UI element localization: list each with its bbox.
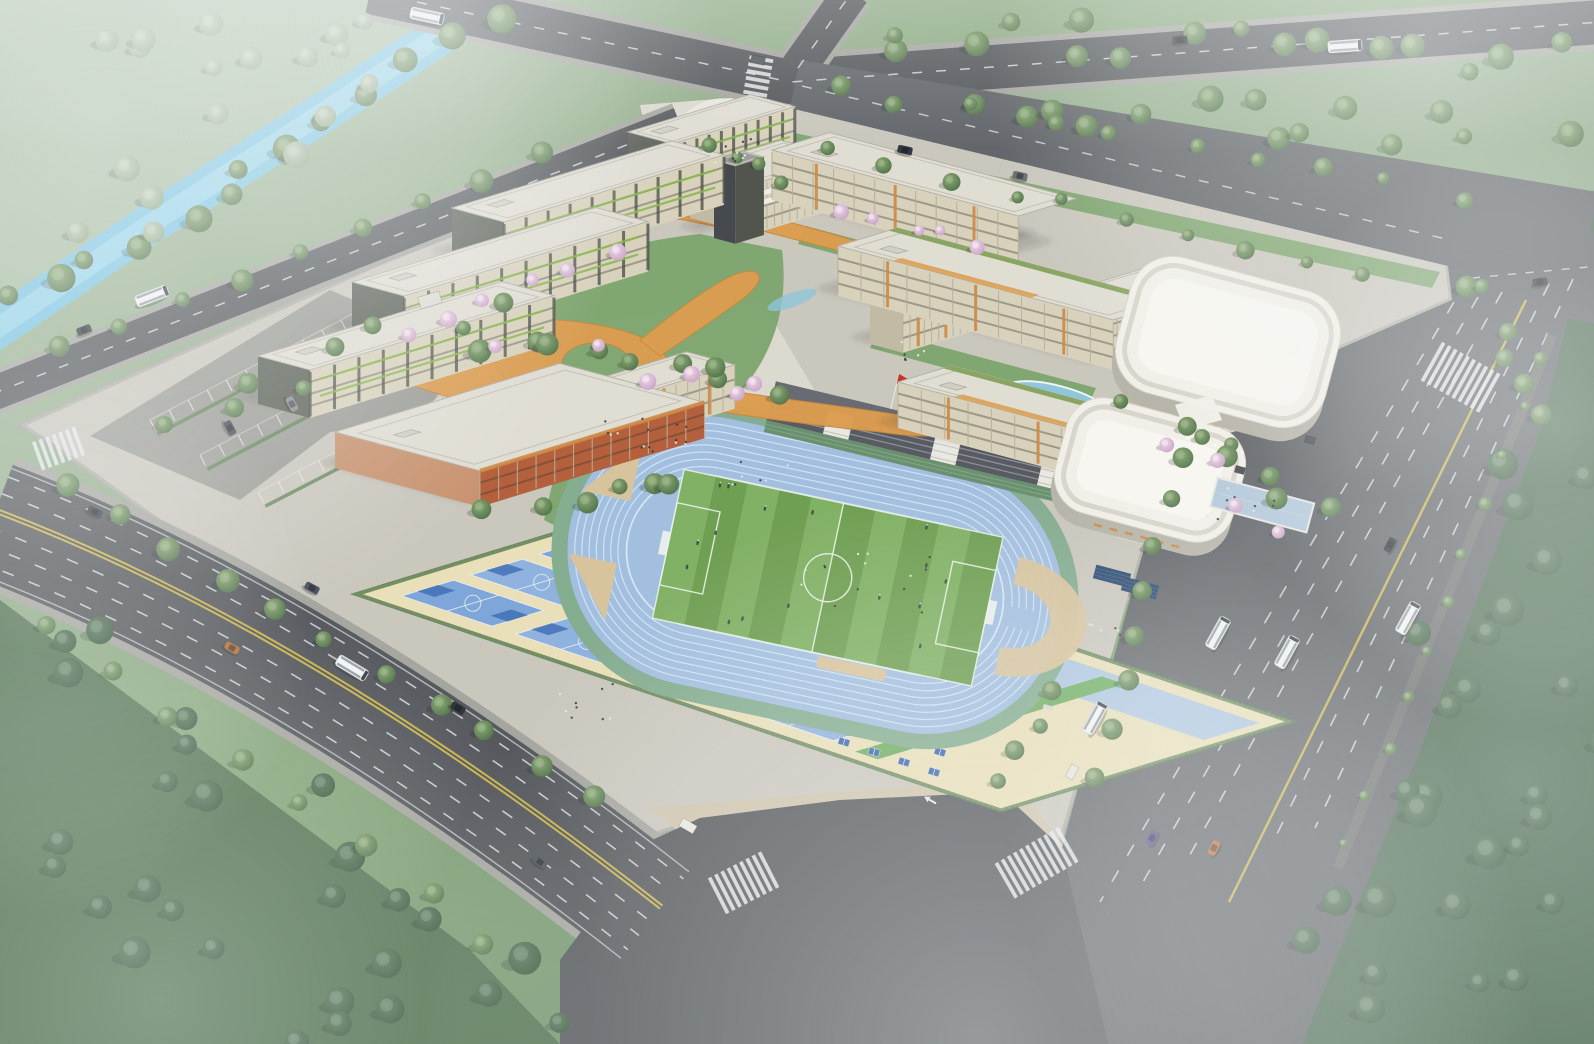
- campus-aerial-view: Aerial bird's-eye architectural renderin…: [0, 0, 1594, 1044]
- architectural-rendering: Aerial bird's-eye architectural renderin…: [0, 0, 1594, 1044]
